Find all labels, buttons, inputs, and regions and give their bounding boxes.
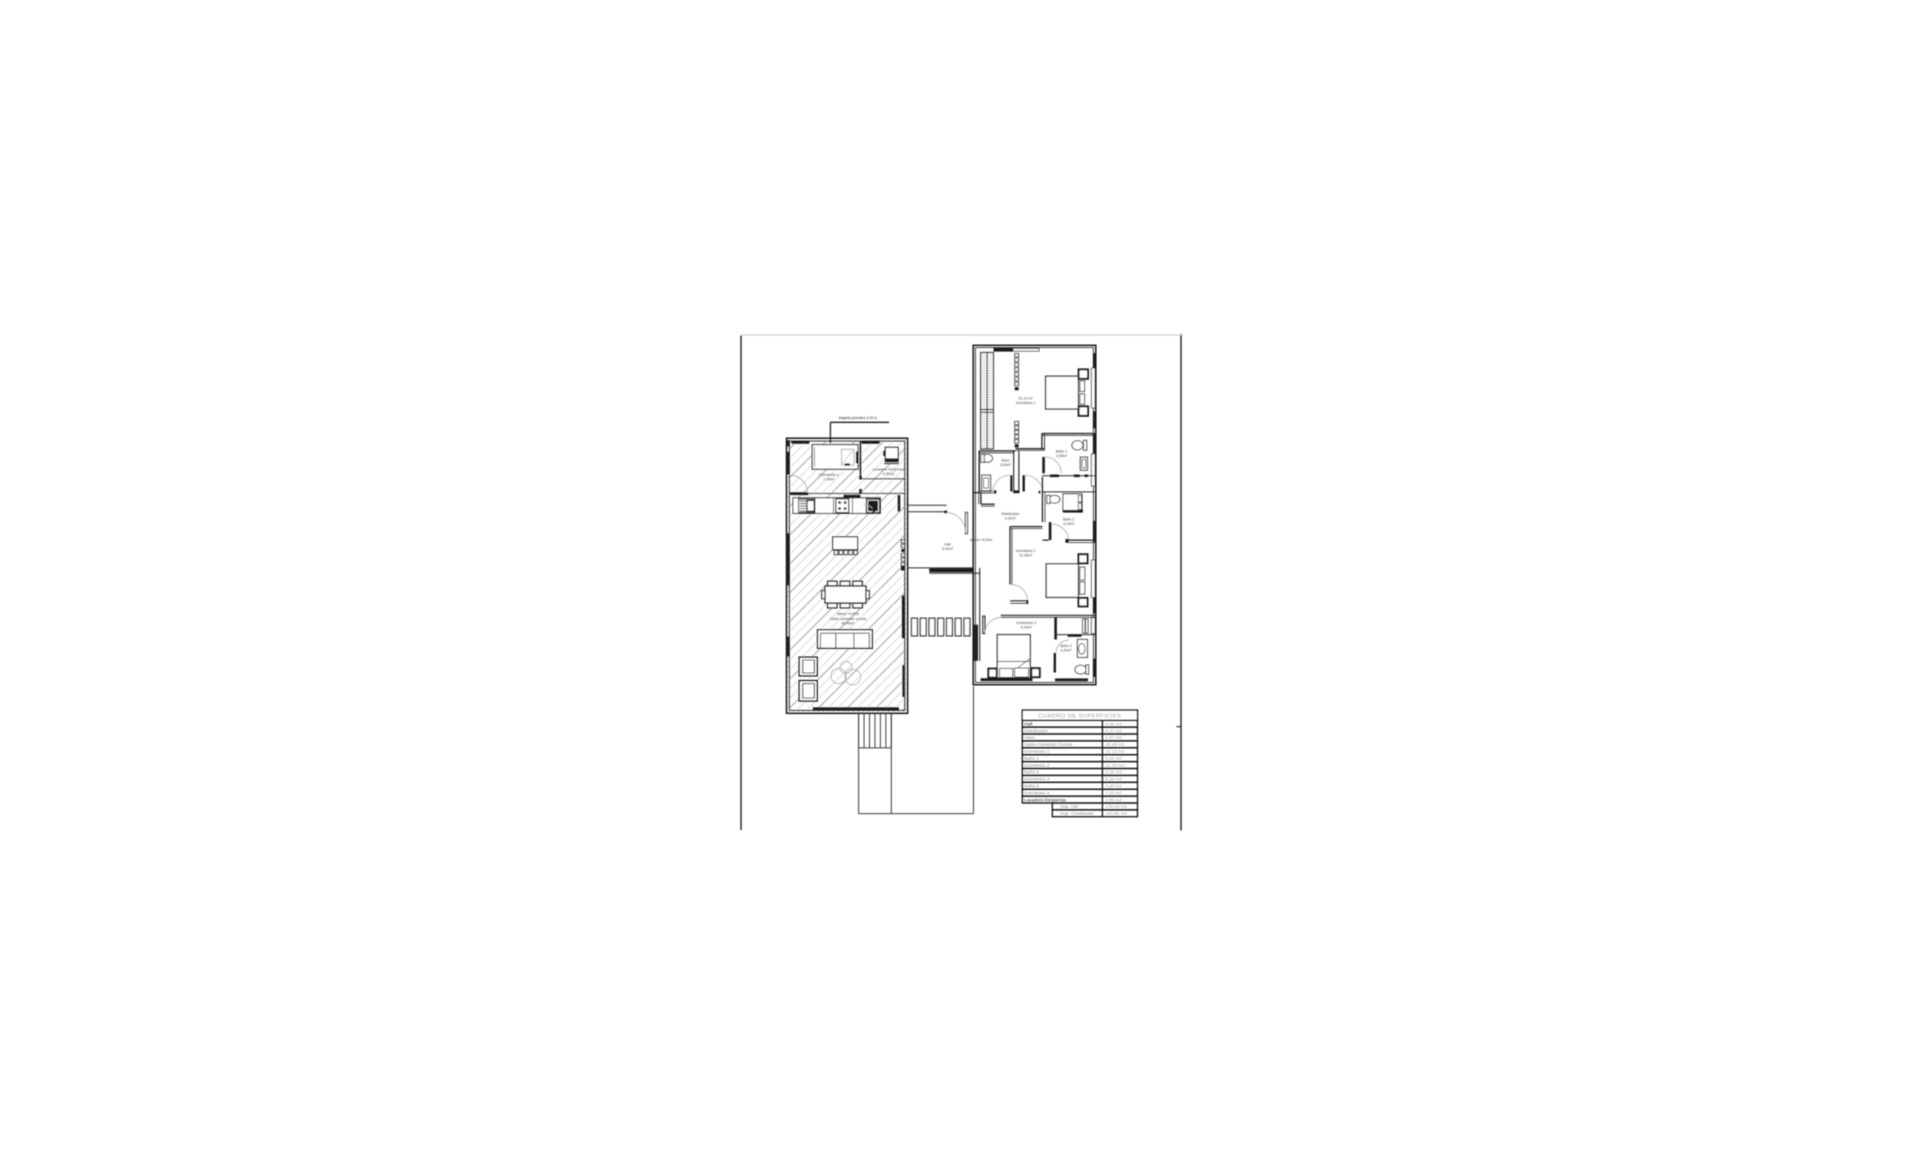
svg-text:9,32m²: 9,32m² (1005, 517, 1017, 521)
svg-text:9,24 m2: 9,24 m2 (1105, 777, 1122, 782)
svg-text:Baño 1: Baño 1 (1024, 756, 1039, 761)
svg-text:2,87 m2: 2,87 m2 (1105, 735, 1122, 740)
svg-text:Sup. Útil: Sup. Útil (1060, 803, 1077, 809)
svg-text:4,24 m2: 4,24 m2 (1105, 770, 1122, 775)
svg-text:4,00m2: 4,00m2 (883, 472, 895, 476)
svg-text:Sup. Construida: Sup. Construida (1060, 811, 1093, 816)
svg-text:Aseo: Aseo (1001, 458, 1009, 462)
svg-text:Baño 3: Baño 3 (1060, 644, 1071, 648)
svg-text:4,24m²: 4,24m² (1063, 522, 1075, 526)
svg-text:162,85 m2: 162,85 m2 (1105, 811, 1127, 816)
svg-text:Dormitorio 4: Dormitorio 4 (1024, 790, 1049, 795)
svg-text:Baño 1: Baño 1 (1056, 449, 1067, 453)
svg-text:4,20 m2: 4,20 m2 (1105, 784, 1122, 789)
svg-text:Baño 2: Baño 2 (1063, 517, 1074, 521)
svg-text:5,03 m2: 5,03 m2 (1105, 756, 1122, 761)
svg-text:Baño 2: Baño 2 (1024, 770, 1039, 775)
svg-text:3,05m²: 3,05m² (1056, 454, 1068, 458)
svg-text:4,89 m2: 4,89 m2 (1105, 797, 1122, 802)
svg-text:Salón-Comedor-Cocina: Salón-Comedor-Cocina (1024, 742, 1072, 747)
svg-text:Hall: Hall (944, 543, 950, 547)
svg-text:45,45m²: 45,45m² (841, 621, 855, 625)
svg-text:Bajante pluviales 4,00 m: Bajante pluviales 4,00 m (839, 416, 877, 420)
svg-text:4,20m²: 4,20m² (1060, 649, 1072, 653)
svg-text:Dormitorio 2: Dormitorio 2 (1016, 549, 1036, 553)
svg-text:8,37 m2: 8,37 m2 (1105, 728, 1122, 733)
svg-text:Hall: Hall (1024, 721, 1032, 726)
svg-text:9,02m²: 9,02m² (942, 547, 954, 551)
svg-text:Lavadero-Despensa: Lavadero-Despensa (872, 467, 904, 471)
svg-text:Distribuidor: Distribuidor (1001, 512, 1020, 516)
svg-text:Dormitorio 2: Dormitorio 2 (1024, 763, 1049, 768)
svg-text:22,13 m2: 22,13 m2 (1105, 749, 1125, 754)
svg-text:Distribuidor: Distribuidor (1024, 728, 1048, 733)
svg-text:Dormitorio 1: Dormitorio 1 (1024, 749, 1049, 754)
svg-text:7,20 m2: 7,20 m2 (1105, 790, 1122, 795)
svg-text:9,02 m2: 9,02 m2 (1105, 721, 1122, 726)
svg-text:Dormitorio 3: Dormitorio 3 (1017, 621, 1037, 625)
svg-text:12,39m²: 12,39m² (1019, 554, 1033, 558)
svg-text:45,48 m2: 45,48 m2 (1105, 742, 1125, 747)
svg-text:Lavadero-Despensa: Lavadero-Despensa (1024, 797, 1066, 802)
svg-text:136,08 m2: 136,08 m2 (1105, 804, 1127, 809)
svg-text:7,30m²: 7,30m² (823, 478, 835, 482)
svg-text:Salón comedor cocina: Salón comedor cocina (830, 617, 867, 621)
svg-text:3,00m²: 3,00m² (1000, 463, 1012, 467)
svg-text:12,39 m2: 12,39 m2 (1105, 763, 1125, 768)
svg-text:Dormitorio 1: Dormitorio 1 (1016, 401, 1036, 405)
svg-text:Dormitorio 4: Dormitorio 4 (819, 473, 839, 477)
svg-text:CUADRO DE SUPERFICIES: CUADRO DE SUPERFICIES (1038, 714, 1121, 720)
svg-text:Altura +4,00m: Altura +4,00m (837, 612, 859, 616)
svg-text:22,13 m²: 22,13 m² (1019, 396, 1034, 400)
svg-text:9,24m²: 9,24m² (1021, 626, 1033, 630)
svg-text:Aseo: Aseo (1024, 735, 1035, 740)
svg-text:Baño 3: Baño 3 (1024, 784, 1039, 789)
svg-text:Dormitorio 3: Dormitorio 3 (1024, 777, 1049, 782)
